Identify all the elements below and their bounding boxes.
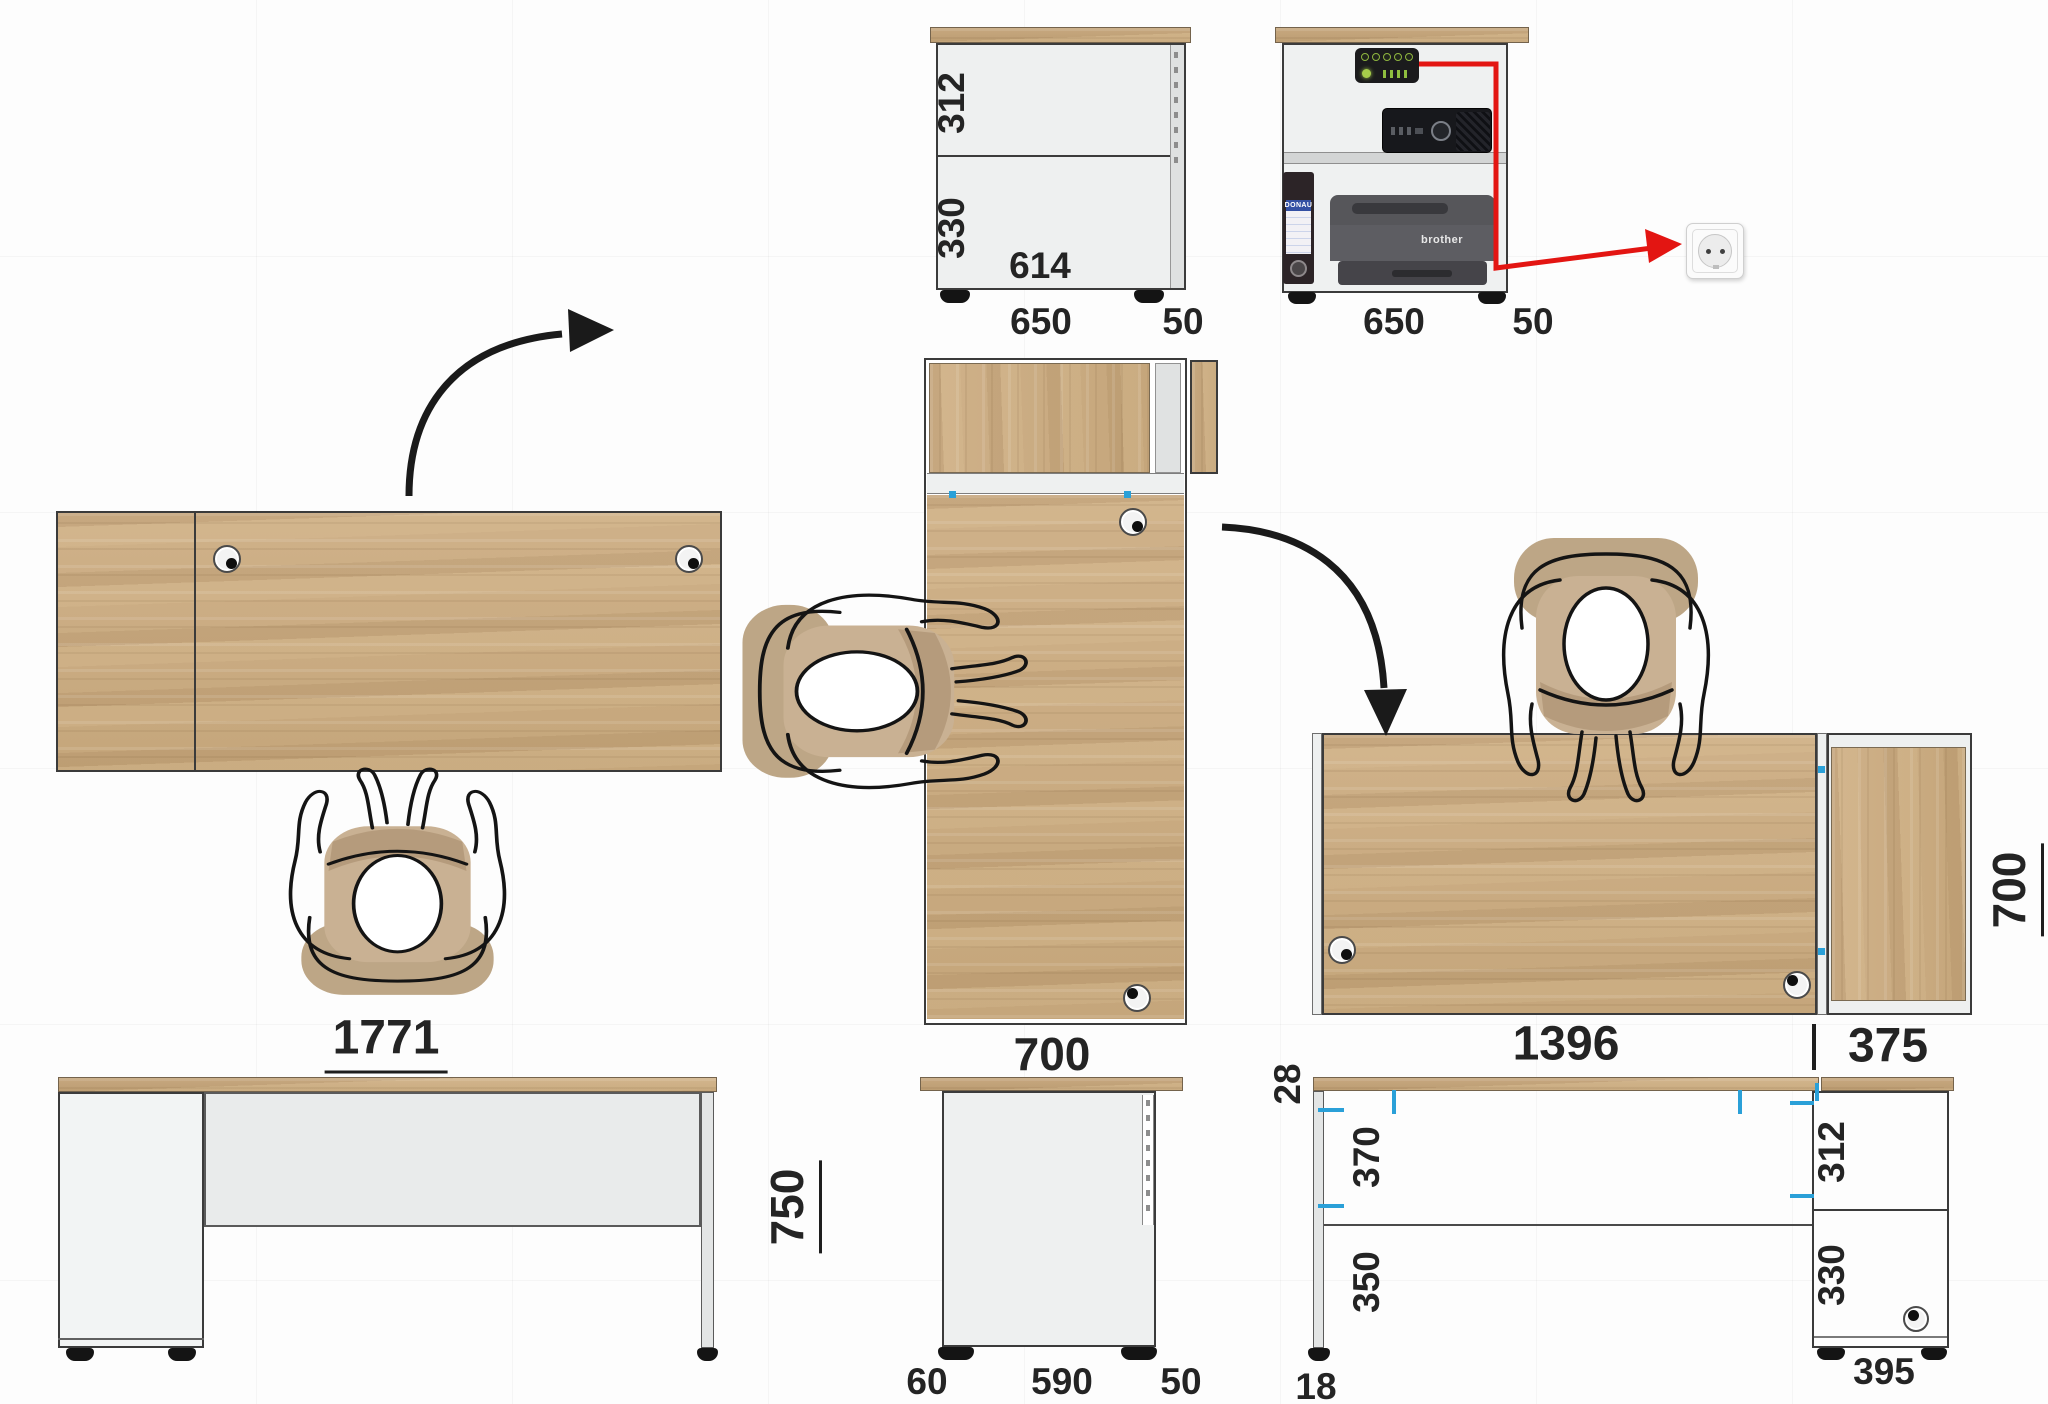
- modesty-panel: [204, 1092, 701, 1227]
- cabinet-foot: [66, 1348, 94, 1361]
- dim-cabinet-top-section: 312: [1811, 1121, 1853, 1183]
- desk-side-panel: [942, 1091, 1156, 1347]
- dim-cabinet-depth: 650: [1010, 301, 1072, 343]
- workstation-cabinet-top-view: [1827, 733, 1972, 1015]
- cable-grommet: [213, 545, 241, 573]
- cabinet-door-edge-top-view: [1155, 363, 1181, 473]
- binder-finger-hole: [1290, 260, 1307, 277]
- desk-foot: [697, 1348, 718, 1361]
- cabinet-foot: [1817, 1348, 1845, 1360]
- cabinet-section-worktop: [930, 27, 1191, 43]
- binder-brand-label: DONAU: [1285, 202, 1313, 209]
- desk-top-cabinet-joint-line: [194, 511, 196, 772]
- cabinet-foot: [1921, 1348, 1947, 1360]
- cabinet-shelf-line: [1812, 1209, 1949, 1211]
- cable-grommet: [675, 545, 703, 573]
- grid-line: [1536, 0, 1537, 1404]
- pc-vent-mesh: [1456, 112, 1490, 151]
- pc-port: [1415, 128, 1423, 134]
- side-hinge-dashes: [1146, 1100, 1150, 1220]
- assembly-tick: [1738, 1090, 1742, 1114]
- power-strip-sockets: [1361, 53, 1413, 65]
- dim-side-leg-depth: 590: [1031, 1361, 1093, 1403]
- pc-ports: [1391, 127, 1411, 135]
- dim-cabinet-door: 50: [1162, 301, 1203, 343]
- outlet-hole: [1720, 249, 1725, 254]
- workstation-cabinet-worktop: [1821, 1077, 1954, 1091]
- cabinet-foot: [1134, 290, 1164, 303]
- printer-tray-handle: [1392, 270, 1452, 277]
- cabinet-foot: [940, 290, 970, 303]
- desk-front-worktop: [58, 1077, 717, 1092]
- dim-top-thickness: 28: [1267, 1063, 1309, 1104]
- office-chair-top-view: [291, 769, 505, 995]
- power-outlet: [1686, 223, 1744, 279]
- desk-leg: [701, 1092, 714, 1348]
- printer-brand-label: brother: [1421, 234, 1463, 246]
- cabinet-section-hinge-dashes: [1174, 52, 1178, 164]
- desk-surface: [927, 495, 1184, 1019]
- dimension-tick: [1812, 1024, 1816, 1070]
- cabinet-top-panel: [1831, 747, 1966, 1001]
- dim-equipment-cabinet-door: 50: [1512, 301, 1553, 343]
- assembly-tick: [1790, 1101, 1814, 1105]
- outlet-hole: [1706, 249, 1711, 254]
- mini-pc: [1382, 108, 1492, 153]
- power-strip: [1355, 48, 1419, 83]
- cabinet-foot: [1288, 292, 1316, 304]
- assembly-tick: [1318, 1108, 1344, 1112]
- equipment-cabinet-shelf: [1284, 152, 1506, 164]
- cabinet-foot: [168, 1348, 196, 1361]
- binder: DONAU: [1283, 172, 1314, 284]
- dim-workstation-desk-width: 1396: [1513, 1017, 1620, 1072]
- outlet-ground-clip: [1713, 265, 1719, 269]
- desk-leg: [1313, 1091, 1324, 1348]
- cabinet-top-panel: [929, 363, 1150, 473]
- power-strip-leds: [1383, 70, 1411, 78]
- connector-mark: [1818, 766, 1825, 773]
- desk-cabinet-junction-strip: [927, 473, 1184, 494]
- workstation-front-worktop: [1313, 1077, 1819, 1091]
- dim-cabinet-width: 395: [1853, 1351, 1915, 1393]
- cable-grommet: [1783, 971, 1811, 999]
- assembly-tick: [1318, 1204, 1344, 1208]
- printer-face: [1330, 225, 1495, 261]
- dim-desk-height: 750: [760, 1161, 822, 1254]
- assembly-tick: [1392, 1090, 1396, 1114]
- equipment-cabinet-worktop: [1275, 27, 1529, 43]
- furniture-technical-drawing: 312 330 614 650 50 DONAU: [0, 0, 2048, 1404]
- grid-line: [1280, 0, 1281, 1404]
- modesty-panel-bottom-line: [1324, 1224, 1812, 1226]
- desk-foot: [1121, 1347, 1157, 1360]
- desk-top-view-rotated: [924, 358, 1187, 1025]
- desk-cabinet-junction-strip: [1817, 733, 1827, 1015]
- dim-workstation-depth: 700: [1982, 844, 2044, 937]
- dim-side-back-offset: 60: [906, 1361, 947, 1403]
- desk-foot: [1308, 1348, 1330, 1361]
- dim-apron-height: 370: [1346, 1126, 1388, 1188]
- desk-foot: [938, 1347, 974, 1360]
- cable-grommet: [1119, 508, 1147, 536]
- assembly-tick: [1815, 1083, 1819, 1101]
- detached-side-panel: [1190, 360, 1218, 474]
- dim-workstation-cabinet-width: 375: [1848, 1019, 1928, 1074]
- printer: brother: [1330, 195, 1495, 287]
- cabinet-foot: [1478, 292, 1506, 304]
- rotation-arrow: [1222, 527, 1407, 736]
- cable-grommet: [1328, 936, 1356, 964]
- dim-side-front-offset: 50: [1160, 1361, 1201, 1403]
- cabinet-plinth-line: [1814, 1336, 1947, 1338]
- connector-mark: [949, 491, 956, 498]
- connector-mark: [1818, 948, 1825, 955]
- cabinet-section-shelf-line: [936, 155, 1186, 157]
- front-cabinet-plinth-line: [58, 1338, 204, 1340]
- dim-cabinet-bottom-section: 330: [931, 197, 973, 259]
- desk-side-worktop: [920, 1077, 1183, 1091]
- connector-mark: [1124, 491, 1131, 498]
- printer-output-slot: [1352, 203, 1448, 214]
- dell-logo-ring: [1431, 121, 1451, 141]
- binder-label-lines: [1286, 211, 1311, 254]
- front-cabinet: [58, 1092, 204, 1348]
- dim-desk-total-width: 1771: [325, 1011, 448, 1074]
- assembly-tick: [1790, 1194, 1814, 1198]
- dim-leg-thickness: 18: [1295, 1366, 1336, 1404]
- workstation-desk-surface: [1322, 733, 1817, 1015]
- desk-top-view: [56, 511, 722, 772]
- cable-grommet: [1123, 984, 1151, 1012]
- outlet-socket: [1698, 234, 1732, 268]
- dim-cabinet-top-section: 312: [931, 72, 973, 134]
- cable-grommet: [1903, 1306, 1929, 1332]
- dim-clearance: 350: [1346, 1251, 1388, 1313]
- desk-edge-strip: [1312, 733, 1322, 1015]
- power-strip-indicator: [1362, 69, 1371, 78]
- dim-equipment-cabinet-depth: 650: [1363, 301, 1425, 343]
- dim-cabinet-bottom-section: 330: [1811, 1244, 1853, 1306]
- dim-cabinet-inner-width: 614: [1009, 245, 1071, 287]
